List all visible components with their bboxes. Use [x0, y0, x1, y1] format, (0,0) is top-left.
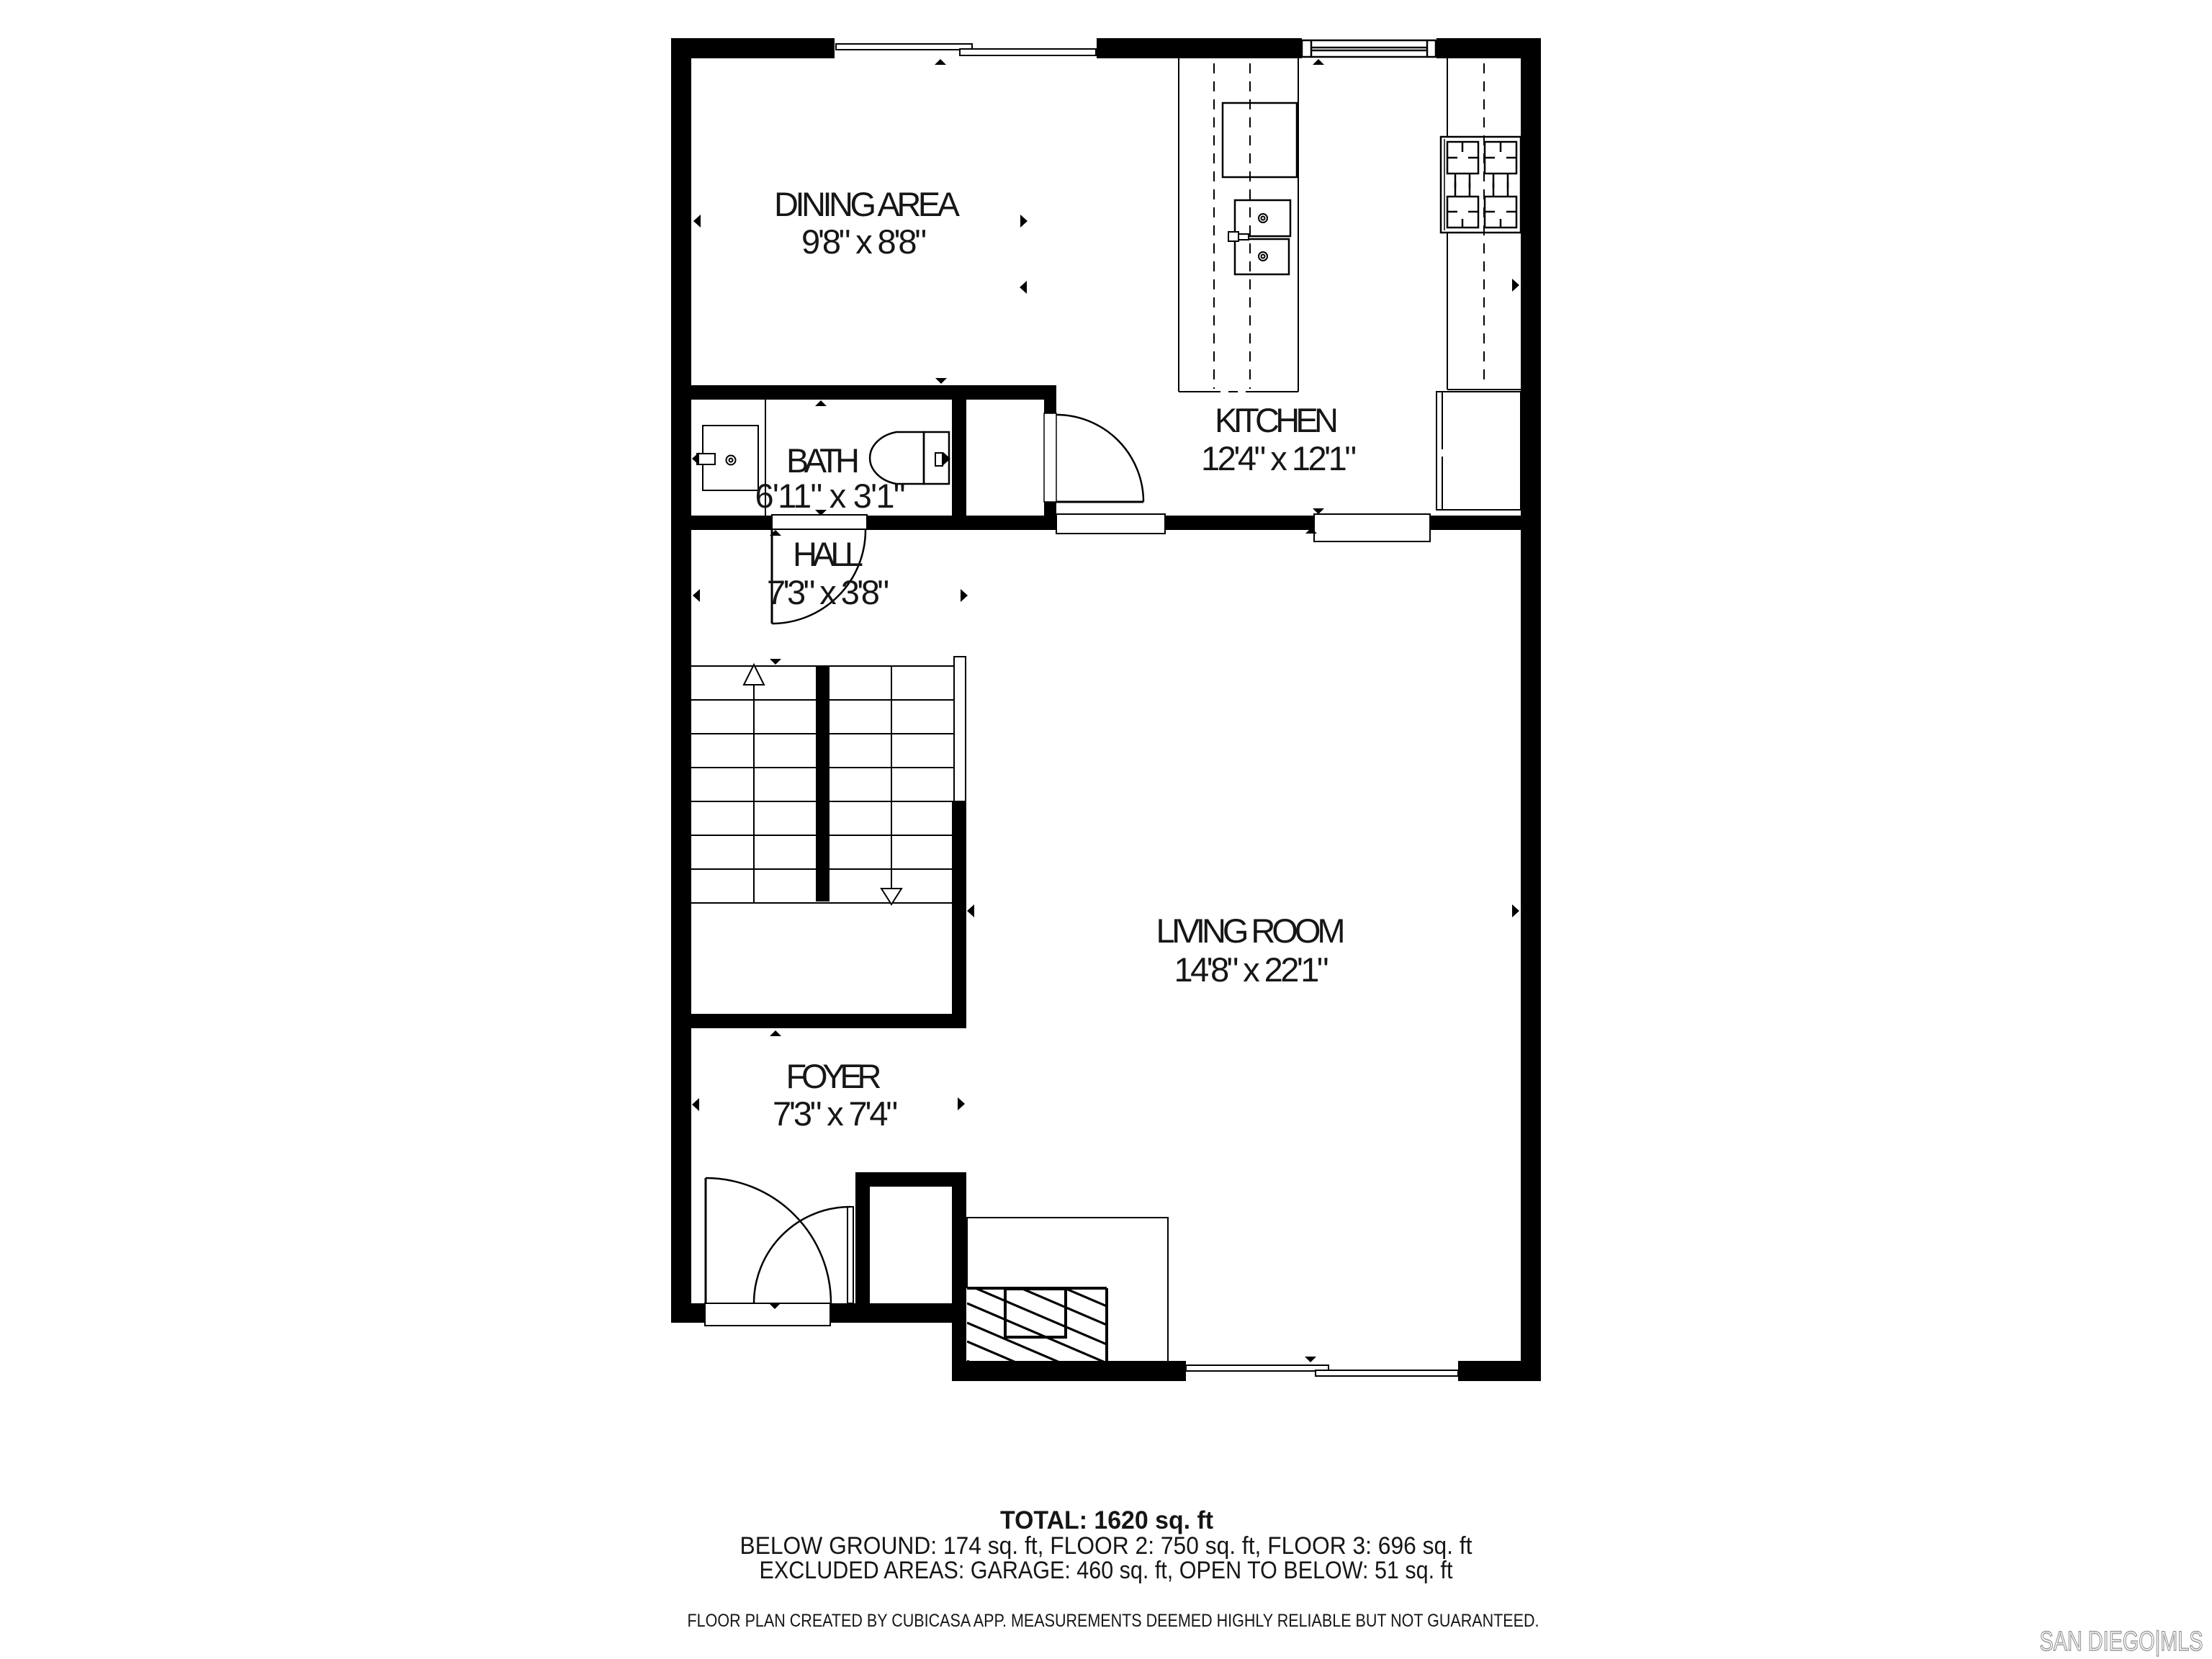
svg-text:14'8" x 22'1": 14'8" x 22'1" [1174, 950, 1329, 989]
svg-text:FLOOR PLAN CREATED BY CUBICASA: FLOOR PLAN CREATED BY CUBICASA APP. MEAS… [688, 1611, 1539, 1631]
svg-text:TOTAL: 1620 sq. ft: TOTAL: 1620 sq. ft [1000, 1506, 1213, 1534]
svg-text:7'3" x 7'4": 7'3" x 7'4" [773, 1094, 898, 1133]
svg-text:12'4" x 12'1": 12'4" x 12'1" [1201, 439, 1357, 477]
svg-text:HALL: HALL [793, 535, 863, 573]
svg-text:SAN DIEGO|MLS: SAN DIEGO|MLS [2040, 1627, 2203, 1657]
svg-text:FOYER: FOYER [786, 1057, 882, 1095]
svg-text:DINING AREA: DINING AREA [774, 185, 961, 223]
svg-text:KITCHEN: KITCHEN [1215, 401, 1339, 439]
svg-text:BELOW GROUND: 174 sq. ft, FLOO: BELOW GROUND: 174 sq. ft, FLOOR 2: 750 s… [740, 1532, 1473, 1560]
svg-text:6'11" x 3'1": 6'11" x 3'1" [755, 477, 906, 515]
svg-text:BATH: BATH [786, 441, 860, 480]
svg-text:7'3" x 3'8": 7'3" x 3'8" [767, 573, 889, 611]
svg-text:LIVING ROOM: LIVING ROOM [1156, 912, 1346, 950]
svg-text:EXCLUDED AREAS: GARAGE: 460 sq: EXCLUDED AREAS: GARAGE: 460 sq. ft, OPEN… [760, 1557, 1453, 1584]
svg-text:9'8" x 8'8": 9'8" x 8'8" [801, 222, 927, 261]
